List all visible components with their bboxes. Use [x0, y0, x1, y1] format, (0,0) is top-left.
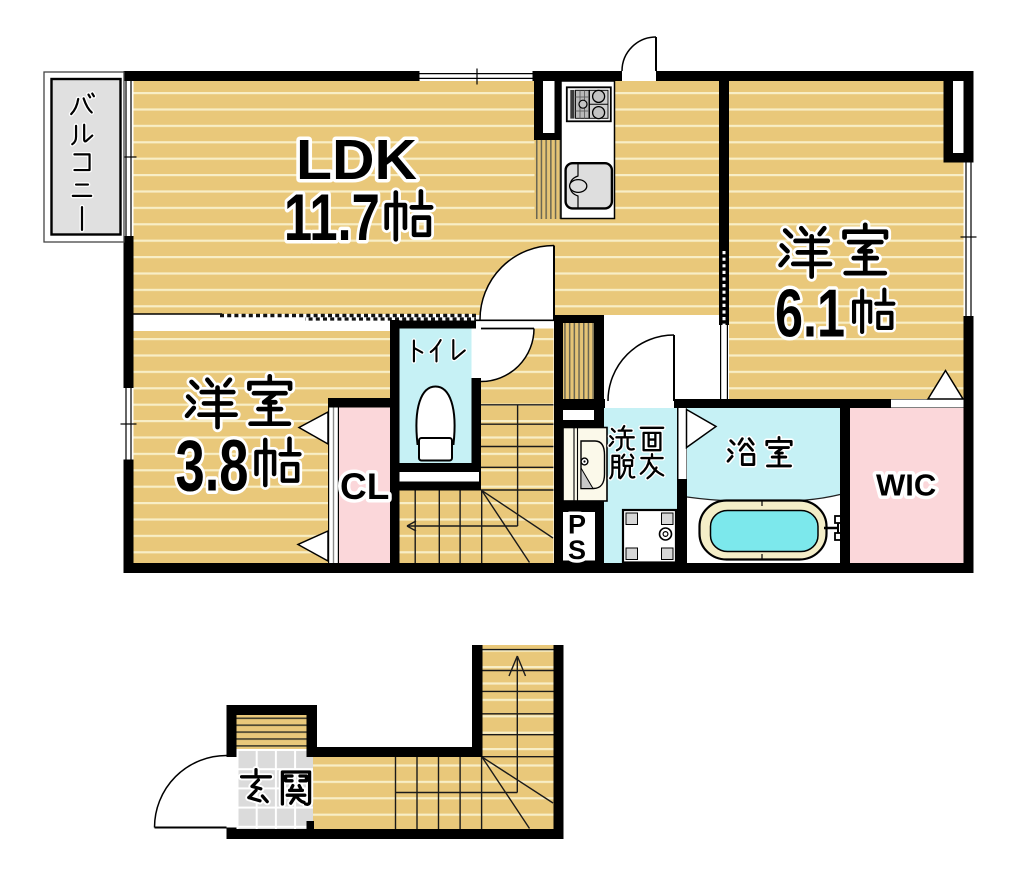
- svg-text:6.1: 6.1: [775, 276, 845, 352]
- svg-text:CL: CL: [340, 466, 389, 507]
- svg-text:11.7: 11.7: [284, 180, 380, 254]
- svg-text:WIC: WIC: [876, 468, 936, 503]
- svg-text:S: S: [568, 535, 586, 565]
- svg-text:3.8: 3.8: [176, 427, 249, 507]
